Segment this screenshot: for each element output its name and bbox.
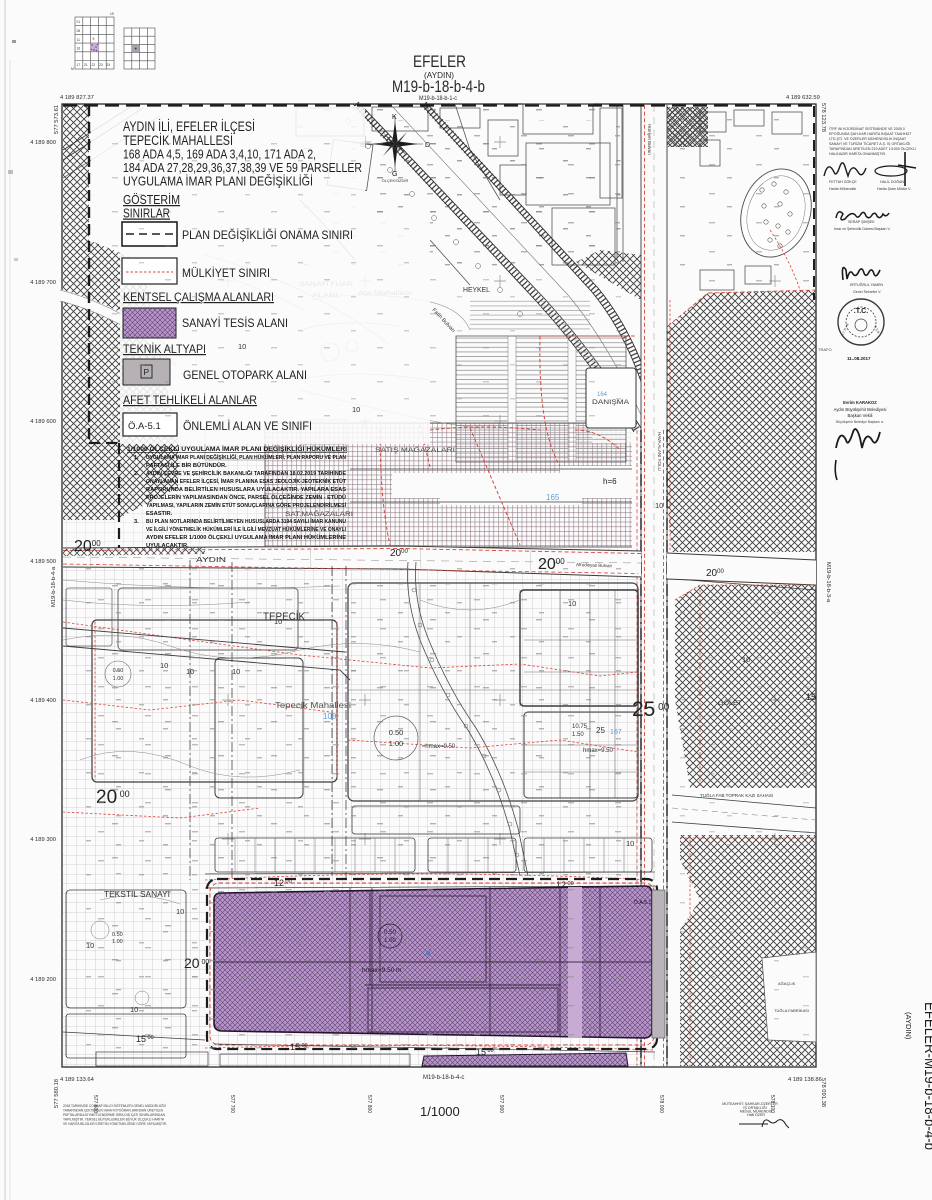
svg-text:Genel Sekreter V.: Genel Sekreter V. [853,290,881,294]
svg-text:YAPILMIŞTIR. YERSEL BÜYÜKLEMEL: YAPILMIŞTIR. YERSEL BÜYÜKLEMELER BÜYÜK Ö… [63,1117,165,1122]
svg-text:4 189 827.37: 4 189 827.37 [60,95,94,101]
svg-text:K: K [392,114,397,121]
svg-text:FETTAH GÖKÇE: FETTAH GÖKÇE [829,180,857,184]
svg-text:.T.C.: .T.C. [854,308,868,315]
svg-text:578 000: 578 000 [658,1095,664,1113]
svg-text:M19-b-18-b-4-b: M19-b-18-b-4-b [392,78,485,96]
svg-text:4 189 200: 4 189 200 [30,977,56,983]
svg-text:4 189 700: 4 189 700 [30,280,56,286]
svg-text:4 189 138.86: 4 189 138.86 [788,1077,822,1083]
svg-text:08: 08 [77,29,81,33]
svg-text:HALİHAZIR HARİTA ONANMIŞTIR.: HALİHAZIR HARİTA ONANMIŞTIR. [829,151,886,156]
svg-text:SAT.MAĞAZALARI: SAT.MAĞAZALARI [285,511,353,518]
svg-text:Harita Mühendisi: Harita Mühendisi [829,187,856,191]
svg-text:PROJELERİN YAPILMASINDAN ÖNC: PROJELERİN YAPILMASINDAN ÖNCE, PARSEL ÖL… [146,493,346,501]
svg-text:4 189 600: 4 189 600 [30,419,56,425]
svg-text:Aydın Büyükşehir Belediyesi: Aydın Büyükşehir Belediyesi [834,407,887,412]
svg-text:AYDIN ÇEVRE VE ŞEHİRCİLİK BAK: AYDIN ÇEVRE VE ŞEHİRCİLİK BAKANLIĞI TARA… [146,469,346,477]
svg-text:ONAYLANAN EFELER İLÇESİ, İMAR: ONAYLANAN EFELER İLÇESİ, İMAR PLANINA ES… [146,478,346,485]
svg-text:10: 10 [655,501,663,510]
svg-text:Başkan Vekili: Başkan Vekili [848,413,873,418]
svg-text:M19-b-18-b-1-c: M19-b-18-b-1-c [419,95,458,102]
svg-text:4 189 133.64: 4 189 133.64 [60,1077,95,1083]
svg-text:3.: 3. [134,519,139,525]
svg-text:h=6: h=6 [603,477,617,486]
svg-text:4 189 800: 4 189 800 [30,140,56,146]
svg-text:ÖNLEMLİ ALAN VE SINIFI: ÖNLEMLİ ALAN VE SINIFI [183,419,312,433]
svg-text:577 900: 577 900 [498,1095,504,1113]
svg-text:ERTUĞRUL YAMEN: ERTUĞRUL YAMEN [850,282,883,287]
svg-text:LTD.ŞTİ. VE ÖZERLER MÜHENDİSLİ: LTD.ŞTİ. VE ÖZERLER MÜHENDİSLİK İNŞAAT [829,136,907,141]
svg-text:SANAYİ VE TURİZM TİCARET A.Ş.: SANAYİ VE TURİZM TİCARET A.Ş. İŞ ORTAKLI… [829,141,910,146]
svg-text:SATIŞ MAĞAZALARI: SATIŞ MAĞAZALARI [375,447,455,454]
svg-text:M19-b-18-b-4-a: M19-b-18-b-4-a [51,566,57,607]
svg-text:Halil ÖZER: Halil ÖZER [747,1113,765,1117]
svg-text:4 189 400: 4 189 400 [30,698,56,704]
svg-text:165: 165 [546,493,560,502]
svg-text:1/1000 ÖLÇEKLİ UYGULAMA İMAR P: 1/1000 ÖLÇEKLİ UYGULAMA İMAR PLANI DEĞİŞ… [127,445,347,453]
svg-text:23: 23 [99,63,103,67]
svg-text:Büyükşehir Belediye Başkanı a.: Büyükşehir Belediye Başkanı a. [836,420,884,424]
svg-text:577 800: 577 800 [366,1095,372,1113]
svg-text:(AYDIN): (AYDIN) [904,1012,913,1040]
svg-text:M: M [71,67,74,71]
svg-text:4 189 300: 4 189 300 [30,837,56,843]
svg-text:01: 01 [77,20,81,24]
svg-text:AYDIN EFELER 1/1000 ÖLÇE: AYDIN EFELER 1/1000 ÖLÇEKLİ UYGULAMA İMA… [146,534,346,541]
svg-text:19: 19 [110,12,114,16]
svg-text:UYGULAMA İMAR PLANI DEĞİŞİKLİĞ: UYGULAMA İMAR PLANI DEĞİŞİKLİĞİ, PLAN HÜ… [146,453,346,461]
svg-text:TARAFINDAN ÇEKTİRİLEN HAVA FOT: TARAFINDAN ÇEKTİRİLEN HAVA FOTOĞRAFLARIN… [63,1108,164,1113]
svg-text:İmar ve Şehircilik Dairesi Baş: İmar ve Şehircilik Dairesi Başkan V. [834,226,891,231]
svg-text:HALİL DOĞAN: HALİL DOĞAN [880,179,904,184]
svg-text:9: 9 [93,37,95,41]
svg-text:21: 21 [84,63,88,67]
svg-text:1.: 1. [134,455,139,461]
svg-text:2.: 2. [134,471,139,477]
svg-text:578 123.78: 578 123.78 [820,103,826,132]
svg-text:24: 24 [107,63,111,67]
svg-text:4 189 632.59: 4 189 632.59 [786,95,820,101]
svg-text:İTRF 96 KOORDİNAT SİSTEMİNDE V: İTRF 96 KOORDİNAT SİSTEMİNDE VE 2005.0 [829,126,905,131]
svg-text:EFELER: EFELER [413,53,466,71]
svg-text:BU PLAN NOTLARINDA BELİRTİLMEY: BU PLAN NOTLARINDA BELİRTİLMEYEN HUSUSLA… [146,518,346,525]
svg-text:22: 22 [92,63,96,67]
svg-text:Ö.A-5.1: Ö.A-5.1 [634,899,651,906]
svg-text:Hürriyet Bulvarı: Hürriyet Bulvarı [647,124,652,155]
svg-text:TRAFO: TRAFO [818,347,832,352]
svg-text:VE İLGİLİ YÖNETMELİK HÜKÜMLERİ: VE İLGİLİ YÖNETMELİK HÜKÜMLERİ İLE İLGİL… [146,526,346,533]
svg-text:577 573.61: 577 573.61 [54,105,60,134]
svg-text:UYULACAKTIR.: UYULACAKTIR. [146,543,189,549]
svg-text:11: 11 [77,38,81,42]
svg-text:TARAFINDAN ÜRETİLEN 219 ADET 1: TARAFINDAN ÜRETİLEN 219 ADET 1/1000 ÖLÇE… [829,146,916,151]
svg-text:PAFTALARDA KIYMETLENDİRME SIRA: PAFTALARDA KIYMETLENDİRME SIRA DIŞ ÇATI … [63,1112,166,1117]
svg-text:HAVA ALANI YOLU: HAVA ALANI YOLU [657,432,662,471]
svg-text:1/1000: 1/1000 [420,1104,460,1119]
svg-text:Evrim KARAKOZ: Evrim KARAKOZ [843,400,877,405]
svg-text:16: 16 [77,47,81,51]
svg-text:577 580.18: 577 580.18 [54,1079,60,1108]
svg-text:17: 17 [77,63,81,67]
svg-text:577 700: 577 700 [229,1095,235,1113]
svg-text:4 189 500: 4 189 500 [30,559,56,565]
svg-text:PAFTASI İLE BİR BÜTÜNDÜR.: PAFTASI İLE BİR BÜTÜNDÜR. [146,462,227,469]
svg-text:Ö.A-5.1: Ö.A-5.1 [128,421,161,432]
svg-text:ESASTIR.: ESASTIR. [146,511,173,517]
svg-text:RAPORUNDA BELİRTİLEN HUSUSL: RAPORUNDA BELİRTİLEN HUSUSLARA UYULACAKT… [146,486,346,493]
svg-text:EPOĞUNDA ŞAH-KAR HARİTA İNŞAAT: EPOĞUNDA ŞAH-KAR HARİTA İNŞAAT TAAHHÜT [829,131,912,136]
svg-text:YAPILMASI, YAPILARIN ZEMİN E: YAPILMASI, YAPILARIN ZEMİN ETÜT SONUÇLAR… [146,502,346,509]
svg-text:M19-b-18-b-3-a: M19-b-18-b-3-a [825,562,831,603]
svg-text:M19-b-18-b-4-c: M19-b-18-b-4-c [423,1075,464,1081]
svg-text:11..08.2017: 11..08.2017 [847,356,871,361]
svg-text:VE HARİTA BİLGİLERİ ÜRETİM YÖN: VE HARİTA BİLGİLERİ ÜRETİM YÖNETMELİĞİNE… [63,1121,167,1126]
svg-text:2018 TARİHİNDE COĞRAFİ BİLGİ S: 2018 TARİHİNDE COĞRAFİ BİLGİ SİSTEMLERİ … [63,1103,167,1108]
svg-text:SERAP ŞİMŞEK: SERAP ŞİMŞEK [848,219,875,224]
svg-text:Harita Şube Müdür V.: Harita Şube Müdür V. [877,187,911,191]
svg-text:578 091.38: 578 091.38 [820,1078,826,1107]
svg-text:EFELER-M19-b-18-b-4-b: EFELER-M19-b-18-b-4-b [921,1002,932,1150]
